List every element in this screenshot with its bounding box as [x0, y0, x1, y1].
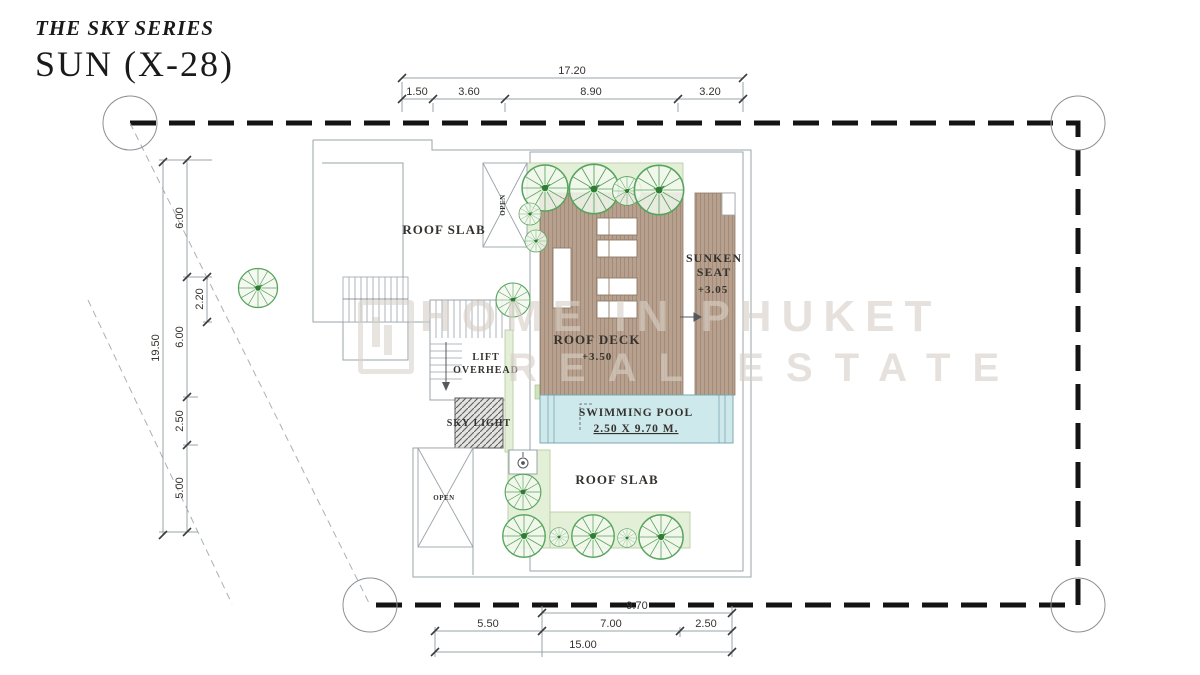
roof-slab-lower-label: ROOF SLAB: [575, 472, 658, 487]
tree-icon: [505, 474, 541, 510]
floor-plan-page: THE SKY SERIES SUN (X-28): [0, 0, 1200, 675]
pool-label-1: SWIMMING POOL: [579, 407, 693, 419]
boundary-diagonals: [88, 123, 370, 605]
tree-icon: [525, 230, 547, 252]
tree-icon: [639, 515, 683, 559]
lift-label-1: LIFT: [472, 352, 499, 363]
dim-bottom-seg-2: 7.00: [600, 618, 621, 630]
dim-top-total: 17.20: [558, 65, 586, 77]
tree-icon: [569, 164, 618, 213]
stair-flight-west: [343, 277, 408, 322]
tree-icon: [496, 283, 530, 317]
dim-left-seg-3: 2.50: [174, 410, 186, 431]
dim-left-seg-1: 6.00: [174, 207, 186, 228]
tree-icon: [550, 528, 569, 547]
dim-bottom-seg-3: 2.50: [695, 618, 716, 630]
sunken-seat-label-1: SUNKEN: [686, 251, 742, 265]
dim-left-sub: 2.20: [194, 288, 206, 309]
open-top-label: OPEN: [499, 194, 507, 215]
swimming-pool-area: [540, 395, 733, 443]
tree-icon: [634, 165, 683, 214]
sky-light-label: SKY LIGHT: [447, 418, 511, 429]
dim-bottom-total: 15.00: [569, 639, 597, 651]
floor-plan-drawing: 17.20 1.50 3.60 8.90 3.20 19.50 6.00 6.0…: [0, 0, 1200, 675]
lift-label-2: OVERHEAD: [453, 365, 519, 376]
shower-icon: [509, 450, 537, 474]
dim-left-total: 19.50: [150, 334, 162, 362]
tree-icon: [572, 515, 615, 558]
dim-top-seg-3: 8.90: [580, 86, 601, 98]
roof-deck-level: +3.50: [582, 351, 613, 363]
tree-icon: [519, 203, 541, 225]
dim-bottom-pool: 9.70: [626, 600, 647, 612]
dim-bottom-seg-1: 5.50: [477, 618, 498, 630]
tree-icon: [618, 529, 637, 548]
sunken-seat-label-2: SEAT: [697, 265, 731, 279]
tree-icon: [238, 268, 277, 307]
dim-left-seg-4: 5.00: [174, 477, 186, 498]
roof-deck-label: ROOF DECK: [554, 332, 641, 347]
roof-slab-upper-label: ROOF SLAB: [402, 222, 485, 237]
dim-top-seg-4: 3.20: [699, 86, 720, 98]
pool-label-2: 2.50 X 9.70 M.: [594, 423, 679, 435]
open-bottom-label: OPEN: [433, 494, 454, 502]
dim-top-seg-2: 3.60: [458, 86, 479, 98]
dim-top-seg-1: 1.50: [406, 86, 427, 98]
tree-icon: [503, 515, 546, 558]
stair-down-arrow-icon: [442, 342, 450, 391]
sunken-seat-level: +3.05: [698, 284, 729, 296]
dim-left-seg-2: 6.00: [174, 326, 186, 347]
